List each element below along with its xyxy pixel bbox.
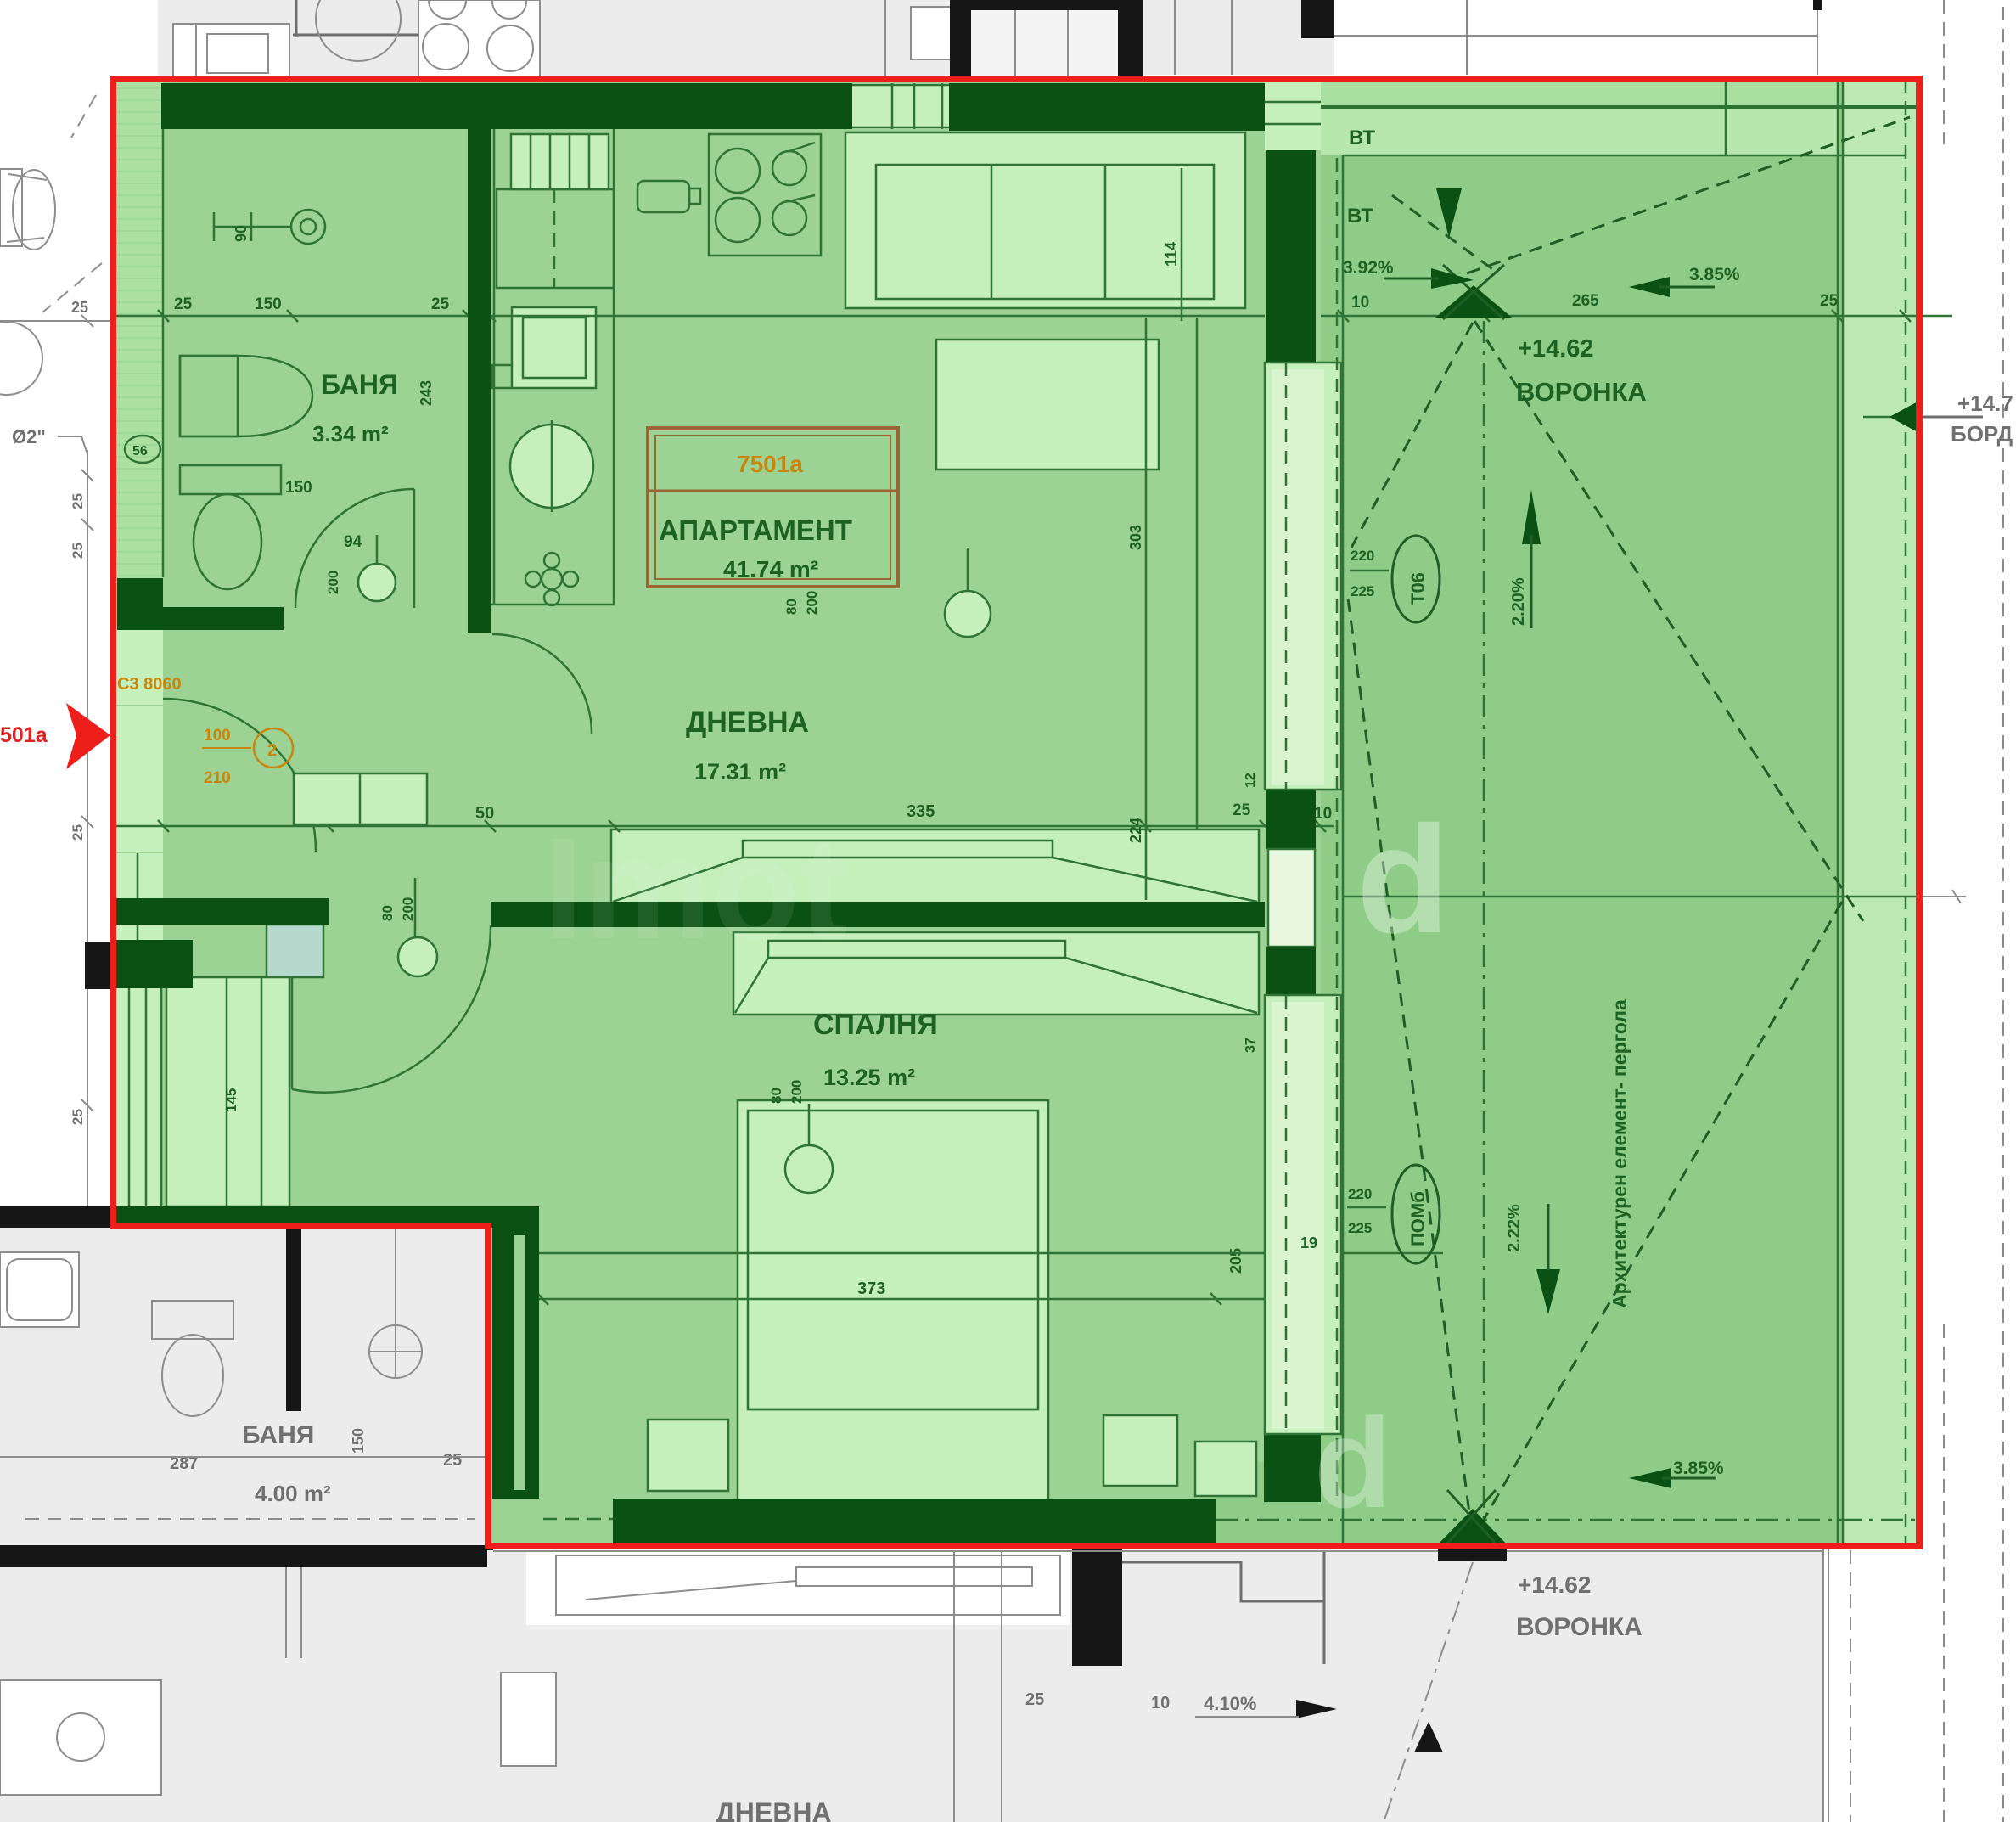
svg-text:ВОРОНКА: ВОРОНКА: [1516, 377, 1647, 407]
svg-text:90: 90: [233, 225, 250, 242]
svg-text:Imot: Imot: [543, 808, 848, 970]
svg-text:335: 335: [907, 802, 935, 821]
svg-text:265: 265: [1572, 292, 1599, 310]
svg-text:114: 114: [1163, 242, 1180, 267]
svg-text:25: 25: [1025, 1690, 1044, 1709]
svg-text:10: 10: [1314, 805, 1332, 823]
svg-text:205: 205: [1227, 1248, 1244, 1274]
svg-text:12: 12: [1244, 773, 1258, 788]
svg-text:3.34 m²: 3.34 m²: [312, 421, 389, 447]
svg-text:БАНЯ: БАНЯ: [242, 1421, 314, 1449]
svg-text:145: 145: [223, 1088, 239, 1112]
svg-text:25: 25: [70, 824, 86, 841]
svg-text:94: 94: [344, 533, 362, 551]
svg-text:25: 25: [443, 1451, 462, 1470]
svg-text:373: 373: [857, 1279, 885, 1298]
svg-text:200: 200: [789, 1080, 805, 1104]
svg-text:ДНЕВНА: ДНЕВНА: [686, 706, 809, 739]
svg-text:25: 25: [1233, 801, 1251, 819]
svg-text:25: 25: [1820, 292, 1839, 310]
svg-text:225: 225: [1348, 1220, 1372, 1236]
svg-text:БАНЯ: БАНЯ: [321, 369, 398, 400]
svg-text:АПАРТАМЕНТ: АПАРТАМЕНТ: [659, 515, 852, 546]
svg-text:4.00 m²: 4.00 m²: [255, 1481, 331, 1506]
svg-text:ПОМб: ПОМб: [1407, 1191, 1429, 1246]
svg-text:210: 210: [204, 769, 231, 787]
svg-text:C3 8060: C3 8060: [117, 675, 182, 694]
svg-text:2: 2: [267, 741, 277, 760]
svg-text:7501a: 7501a: [737, 451, 803, 477]
svg-text:СПАЛНЯ: СПАЛНЯ: [813, 1009, 938, 1041]
svg-text:56: 56: [132, 444, 148, 458]
svg-text:303: 303: [1127, 525, 1144, 550]
svg-text:220: 220: [1348, 1186, 1372, 1202]
svg-text:25: 25: [431, 295, 450, 313]
svg-text:3.92%: 3.92%: [1343, 258, 1394, 278]
svg-text:Ø2": Ø2": [12, 426, 46, 447]
svg-text:50: 50: [475, 804, 494, 823]
svg-text:220: 220: [1351, 548, 1374, 564]
svg-text:13.25 m²: 13.25 m²: [823, 1065, 915, 1090]
svg-text:ВОРОНКА: ВОРОНКА: [1516, 1613, 1643, 1641]
svg-text:10: 10: [1151, 1694, 1170, 1712]
svg-text:243: 243: [418, 380, 435, 406]
svg-text:d: d: [1314, 1392, 1392, 1534]
svg-text:150: 150: [255, 295, 282, 313]
svg-text:2.20%: 2.20%: [1509, 577, 1528, 626]
svg-text:225: 225: [1351, 583, 1374, 599]
svg-text:+14.7: +14.7: [1957, 391, 2013, 416]
svg-text:80: 80: [783, 599, 800, 615]
svg-text:150: 150: [285, 479, 312, 497]
svg-text:2.22%: 2.22%: [1505, 1204, 1524, 1252]
svg-text:200: 200: [804, 591, 820, 615]
svg-text:25: 25: [70, 543, 86, 559]
svg-text:ДНЕВНА: ДНЕВНА: [716, 1797, 832, 1822]
svg-text:37: 37: [1244, 1038, 1258, 1053]
svg-text:200: 200: [325, 571, 341, 594]
svg-text:3.85%: 3.85%: [1689, 265, 1740, 284]
svg-text:25: 25: [71, 299, 88, 316]
svg-text:ВТ: ВТ: [1349, 127, 1375, 149]
svg-text:80: 80: [379, 905, 396, 921]
svg-text:200: 200: [400, 897, 416, 921]
svg-text:4.10%: 4.10%: [1204, 1693, 1256, 1714]
svg-text:+14.62: +14.62: [1518, 1572, 1591, 1598]
svg-text:25: 25: [174, 295, 193, 313]
svg-text:501a: 501a: [0, 723, 48, 747]
svg-text:80: 80: [768, 1088, 784, 1104]
svg-text:150: 150: [350, 1428, 367, 1454]
svg-text:25: 25: [70, 1109, 86, 1125]
svg-text:41.74 m²: 41.74 m²: [723, 556, 818, 582]
svg-text:БОРД: БОРД: [1951, 421, 2013, 447]
svg-text:d: d: [1356, 795, 1450, 965]
svg-text:10: 10: [1351, 294, 1369, 312]
svg-text:3.85%: 3.85%: [1673, 1459, 1724, 1478]
svg-text:17.31 m²: 17.31 m²: [694, 759, 786, 784]
svg-text:ВТ: ВТ: [1347, 205, 1373, 228]
svg-text:Архитектурен елемент- пергола: Архитектурен елемент- пергола: [1609, 999, 1631, 1308]
svg-text:19: 19: [1300, 1234, 1317, 1251]
svg-text:100: 100: [204, 727, 231, 745]
svg-text:+14.62: +14.62: [1518, 335, 1594, 363]
svg-text:Т06: Т06: [1407, 572, 1429, 605]
svg-text:25: 25: [70, 493, 86, 509]
